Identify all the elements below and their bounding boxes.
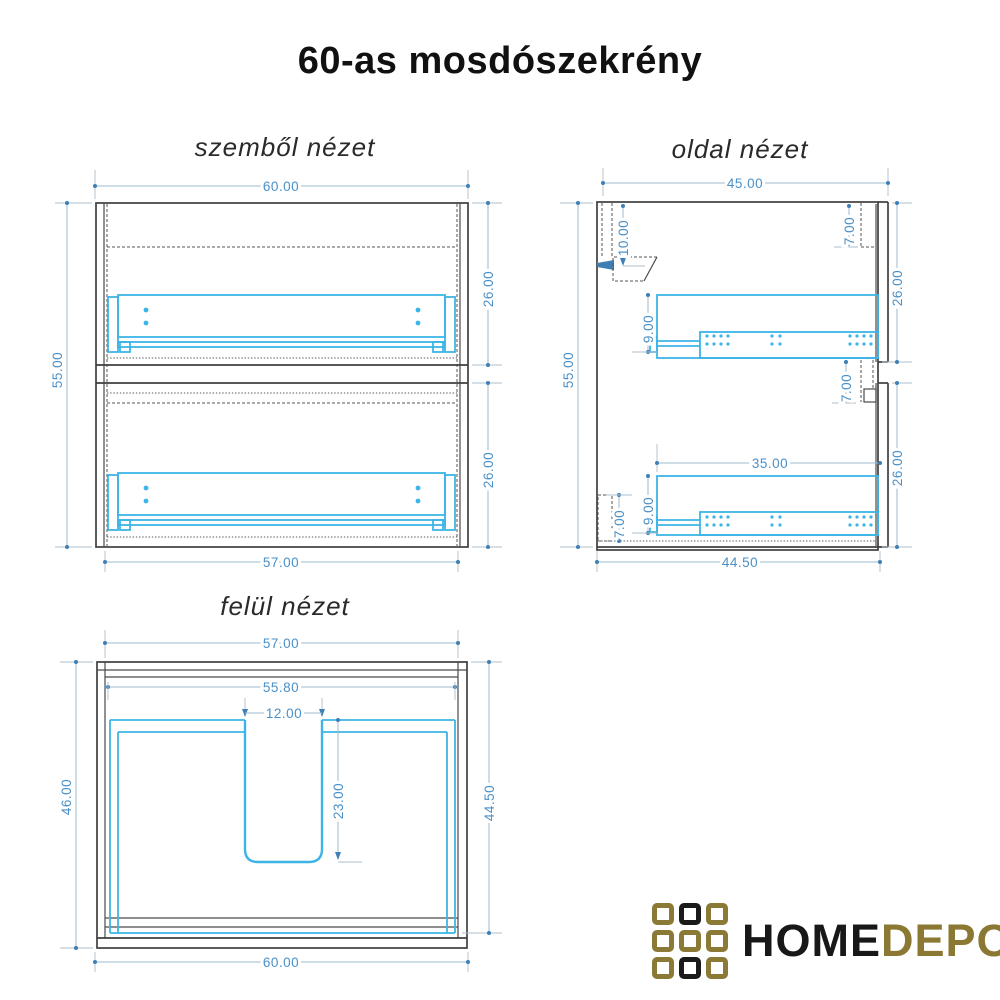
dim-side-upper-rail: 9.00 (641, 315, 656, 343)
dim-front-upper-drawer: 26.00 (481, 271, 496, 307)
dim-top-cutout-width: 12.00 (266, 706, 302, 721)
logo-depo-text: DEPO (881, 915, 1000, 966)
dim-side-bottom-depth: 44.50 (722, 555, 758, 570)
dim-side-rail-length: 35.00 (752, 456, 788, 471)
dim-side-lower-rail: 9.00 (641, 497, 656, 525)
dim-front-height: 55.00 (50, 352, 65, 388)
dim-side-bottom-recess: 7.00 (612, 510, 627, 538)
front-view-title: szemből nézet (195, 132, 376, 162)
front-cabinet-outline (96, 203, 468, 547)
front-upper-drawer (108, 295, 455, 352)
dim-side-hanger-drop: 10.00 (616, 220, 631, 256)
dim-side-height: 55.00 (561, 352, 576, 388)
dim-top-depth-left: 46.00 (59, 779, 74, 815)
dim-side-top-recess: 7.00 (842, 217, 857, 245)
dim-front-bottom-width: 57.00 (263, 555, 299, 570)
dim-side-mid-recess: 7.00 (839, 374, 854, 402)
side-lower-drawer (650, 476, 878, 535)
dim-front-lower-drawer: 26.00 (481, 452, 496, 488)
dim-side-top-width: 45.00 (727, 176, 763, 191)
side-view-title: oldal nézet (672, 134, 810, 164)
dim-top-inner-width: 55.80 (263, 680, 299, 695)
dim-side-upper-section: 26.00 (890, 270, 905, 306)
top-dimensions: 57.00 55.80 12.00 23.00 46.00 44.50 (59, 630, 502, 972)
dim-top-cutout-depth: 23.00 (331, 783, 346, 819)
homedepo-logo: HOMEDEPO (652, 903, 1000, 979)
dim-top-depth-right: 44.50 (482, 785, 497, 821)
front-view: szemből nézet (50, 125, 520, 585)
dim-front-top-width: 60.00 (263, 179, 299, 194)
homedepo-grid-icon (652, 903, 728, 979)
drawing-sheet: 60-as mosdószekrény szemből nézet (0, 0, 1000, 1000)
homedepo-wordmark: HOMEDEPO (742, 915, 1000, 967)
dim-top-width: 57.00 (263, 636, 299, 651)
wall-bracket-mark (597, 260, 614, 270)
top-cabinet-outline (97, 662, 467, 948)
side-upper-drawer (650, 295, 878, 358)
front-lower-drawer (108, 473, 455, 530)
logo-home-text: HOME (742, 915, 881, 966)
top-sink-outline (110, 720, 455, 933)
page-title: 60-as mosdószekrény (0, 40, 1000, 83)
top-view-title: felül nézet (220, 591, 350, 621)
side-view: oldal nézet (555, 125, 1000, 590)
dim-side-lower-section: 26.00 (890, 450, 905, 486)
top-view: felül nézet 57.00 (40, 590, 510, 985)
siphon-cutout (245, 720, 322, 862)
dim-top-bottom-width: 60.00 (263, 955, 299, 970)
